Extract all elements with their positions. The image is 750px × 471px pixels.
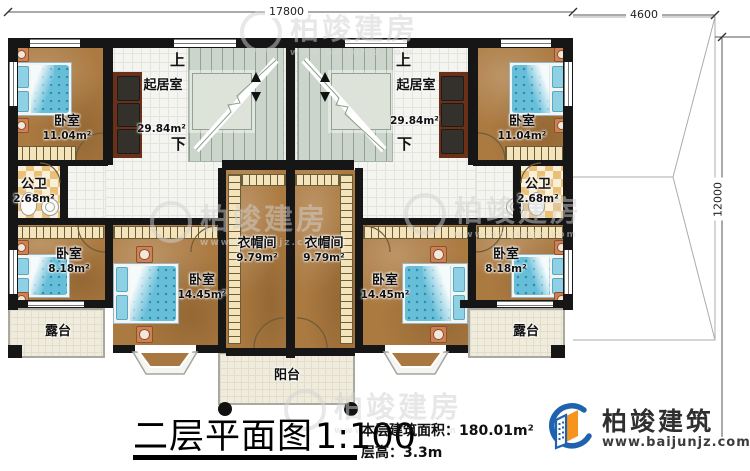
label-bedroom-top-left: 卧室 11.04m²	[27, 114, 107, 142]
bed-mattress	[512, 65, 550, 113]
label-bedroom-top-right: 卧室 11.04m²	[482, 114, 562, 142]
wall-cloakroom-left-west	[218, 168, 226, 352]
wall-mid-right	[355, 218, 573, 225]
label-bath-left: 公卫 2.68m²	[8, 177, 60, 205]
bed-top-right	[509, 62, 567, 116]
floor-area-line: 本层建筑面积：180.01m²	[361, 420, 534, 442]
label-bath-right: 公卫 2.68m²	[512, 177, 564, 205]
bed-headboard	[17, 257, 29, 295]
wall-ml-south-a	[113, 345, 135, 353]
label-living-right-area: 29.84m²	[377, 115, 452, 128]
label-living-left: 起居室	[128, 78, 198, 94]
terrace-right-corner-block	[551, 345, 565, 358]
dimension-top-width: 17800	[8, 5, 565, 18]
brand-website: www.baijunjz.com	[602, 436, 750, 450]
bed-headboard	[116, 266, 128, 321]
wall-bedroom-tl-east	[103, 44, 113, 165]
corridor-left	[67, 163, 105, 220]
label-terrace-left: 露台	[20, 324, 96, 340]
stair-up-label-right: 上	[396, 49, 411, 70]
wardrobe-bedroom-br	[477, 226, 567, 239]
window-left-1	[9, 62, 17, 106]
floor-plan-canvas: 柏竣建房www.baijunjz.com 柏竣建房www.baijunjz.co…	[0, 0, 750, 471]
dimension-roof-width: 4600	[573, 8, 715, 21]
wall-bedroom-tl-south	[8, 160, 108, 166]
wall-cloakroom-right-east	[355, 168, 363, 352]
label-living-right: 起居室	[381, 78, 451, 94]
window-top-1	[30, 39, 80, 47]
wardrobe-bedroom-bl	[14, 226, 104, 239]
floor-height-line: 层高：3.3m	[361, 442, 534, 464]
stair-landing-left	[192, 73, 252, 130]
label-cloakroom-left: 衣帽间 9.79m²	[226, 236, 288, 264]
label-terrace-right: 露台	[488, 324, 564, 340]
wall-bath-left-east	[60, 163, 68, 223]
label-living-left-area: 29.84m²	[124, 123, 199, 136]
wall-bl-ml-divider	[105, 225, 113, 308]
wardrobe-bedroom-mr	[363, 226, 468, 239]
roof-outline	[573, 17, 715, 340]
drawing-title-text: 二层平面图	[133, 408, 313, 459]
brand-logo-icon	[542, 400, 596, 458]
window-right-2	[564, 250, 572, 294]
window-top-stair-left	[174, 39, 236, 47]
nightstand	[136, 246, 153, 263]
wardrobe-bedroom-tr	[505, 146, 567, 161]
wall-bedroom-tr-west	[468, 44, 478, 165]
stair-up-label-left: 上	[170, 49, 185, 70]
wardrobe-bedroom-tl	[14, 146, 76, 161]
label-bedroom-bottom-left: 卧室 8.18m²	[33, 247, 105, 275]
bed-headboard	[453, 266, 465, 321]
dimension-right-height: 12000	[712, 170, 725, 230]
window-br-south	[497, 301, 553, 307]
bay-window-right	[384, 352, 448, 374]
nightstand	[430, 326, 447, 343]
label-bedroom-mid-right: 卧室 14.45m²	[346, 273, 424, 301]
window-top-2	[501, 39, 551, 47]
label-bedroom-bottom-right: 卧室 8.18m²	[470, 247, 542, 275]
nightstand	[136, 326, 153, 343]
wardrobe-cloakroom-right-top	[295, 174, 340, 186]
window-top-stair-right	[345, 39, 407, 47]
terrace-left-corner-block	[8, 345, 22, 358]
wall-mid-left	[8, 218, 226, 225]
window-right-1	[564, 62, 572, 106]
wardrobe-bedroom-ml	[113, 226, 218, 239]
wall-cloakroom-north	[222, 160, 354, 170]
brand-logo: 柏竣建筑 www.baijunjz.com	[542, 400, 750, 458]
wall-mr-south-b	[355, 345, 385, 353]
wall-bedroom-tr-south	[473, 160, 573, 166]
brand-name: 柏竣建筑	[602, 408, 750, 436]
bay-window-left	[133, 352, 197, 374]
wardrobe-cloakroom-left-top	[241, 174, 286, 186]
bed-headboard	[17, 65, 29, 113]
window-bl-south	[28, 301, 84, 307]
wall-mr-south-a	[446, 345, 468, 353]
wall-cloakroom-right-south	[295, 348, 355, 356]
label-cloakroom-right: 衣帽间 9.79m²	[293, 236, 355, 264]
stair-down-label-right: 下	[397, 133, 412, 154]
nightstand	[430, 246, 447, 263]
title-underline	[133, 455, 357, 460]
wall-ml-south-b	[196, 345, 226, 353]
window-left-2	[9, 250, 17, 294]
stair-down-label-left: 下	[171, 133, 186, 154]
floor-info: 本层建筑面积：180.01m² 层高：3.3m	[361, 420, 534, 465]
label-balcony: 阳台	[252, 368, 322, 384]
wall-center-party	[286, 38, 295, 358]
wall-cloakroom-left-south	[226, 348, 286, 356]
bed-top-left	[14, 62, 72, 116]
bed-mattress	[31, 65, 69, 113]
label-bedroom-mid-left: 卧室 14.45m²	[163, 273, 241, 301]
